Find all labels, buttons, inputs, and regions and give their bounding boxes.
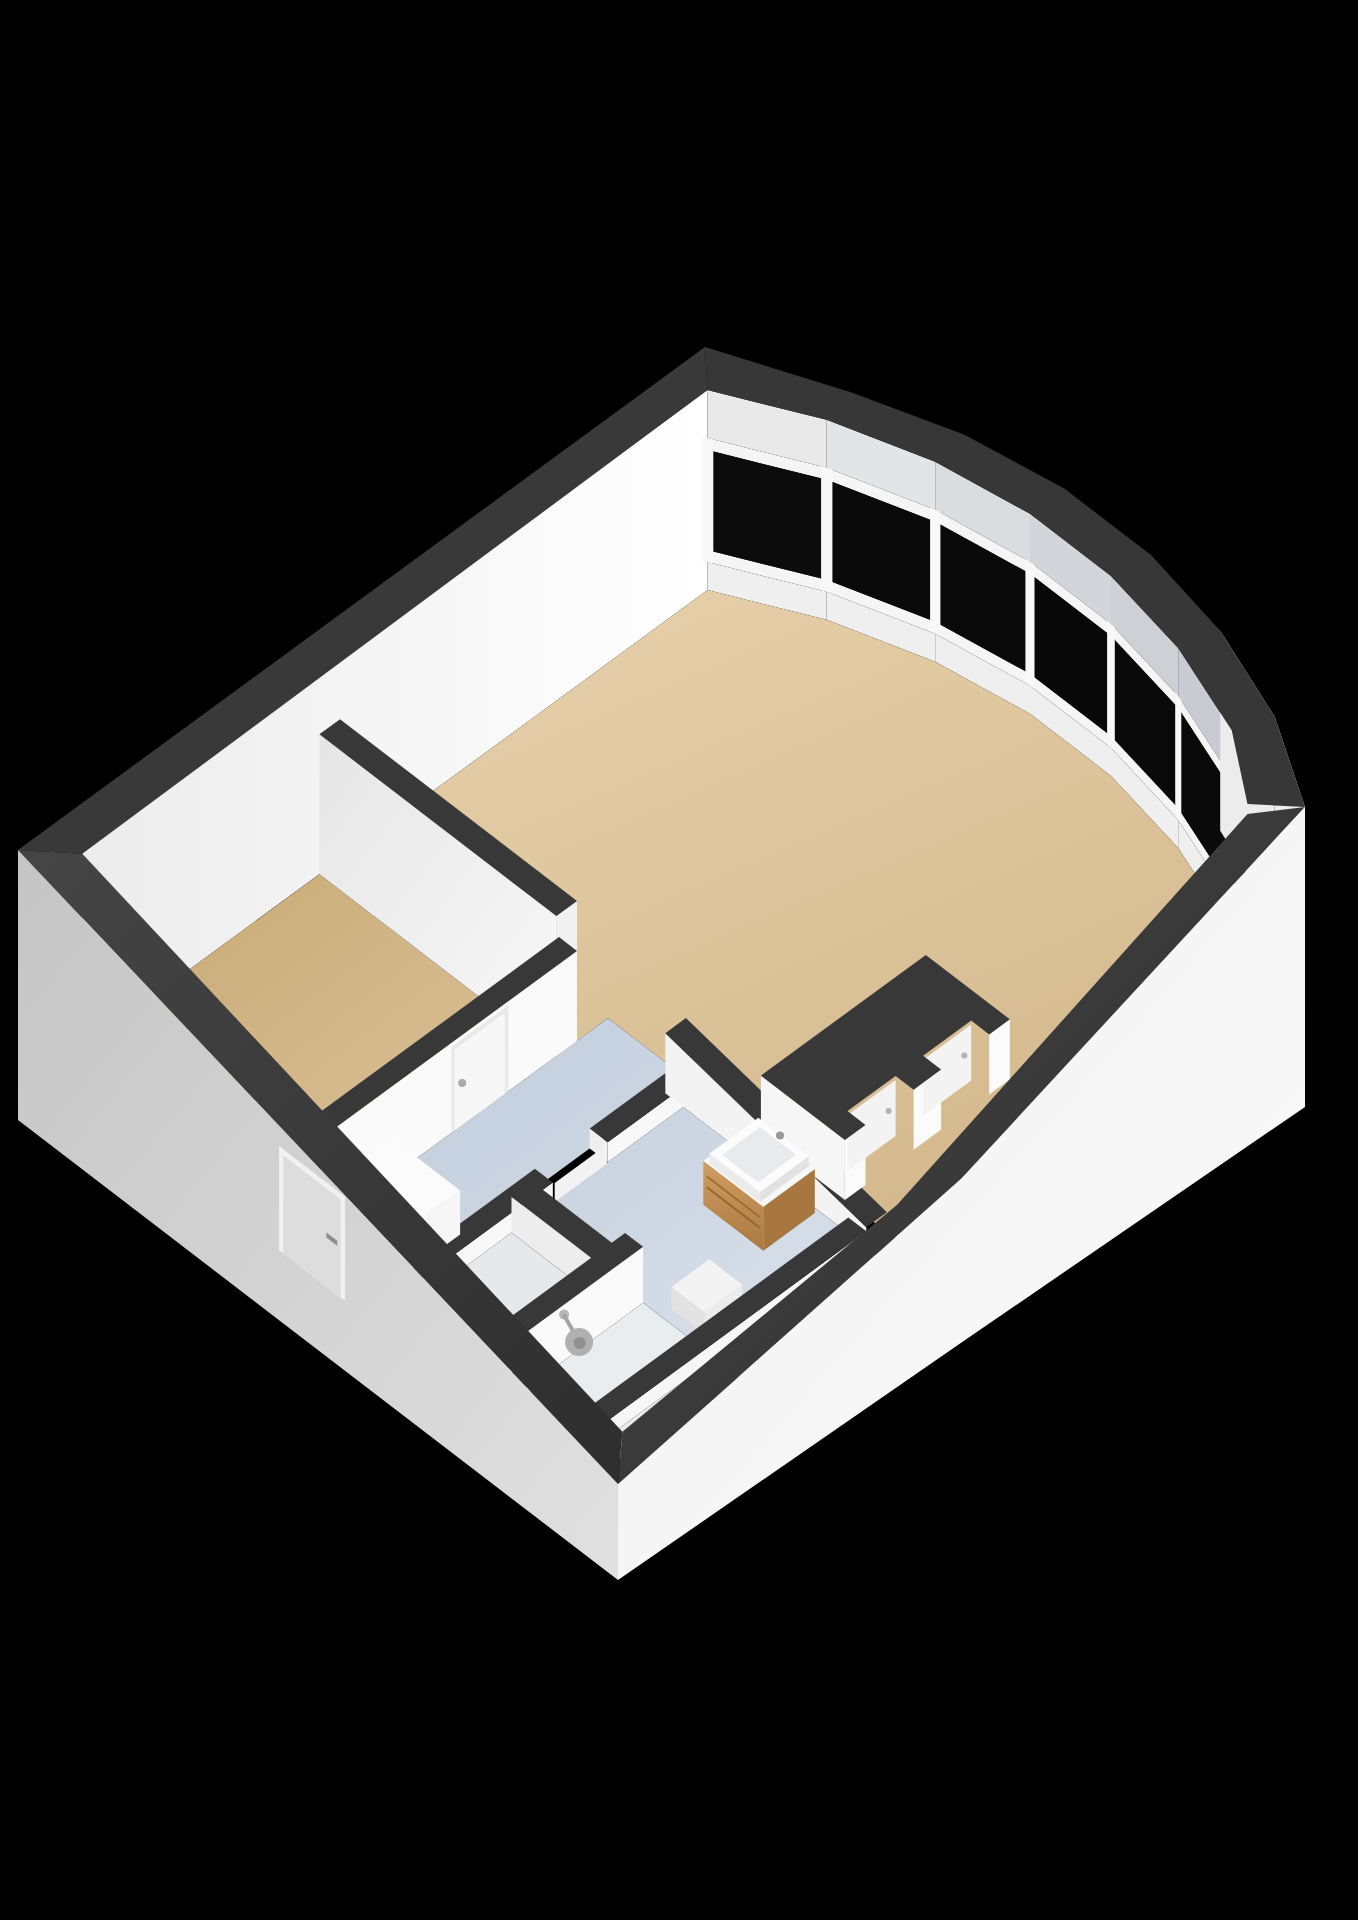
bedroom-door-handle	[458, 1079, 466, 1087]
vanity-faucet	[776, 1132, 784, 1140]
window-wall-mullion-post	[702, 437, 714, 564]
window-wall-mullion-post	[1175, 692, 1181, 824]
window-wall-mullion-post	[821, 466, 832, 594]
window-wall-mullion-post	[1025, 559, 1034, 689]
floorplan-canvas	[0, 0, 1358, 1920]
window-wall-mullion-post	[930, 507, 940, 636]
window-wall-mullion-post	[1107, 620, 1115, 751]
closet-door-1-handle	[886, 1108, 892, 1114]
floorplan-3d-render	[0, 0, 1358, 1920]
closet-door-2-handle	[961, 1053, 967, 1059]
shower-head-center	[574, 1337, 586, 1349]
